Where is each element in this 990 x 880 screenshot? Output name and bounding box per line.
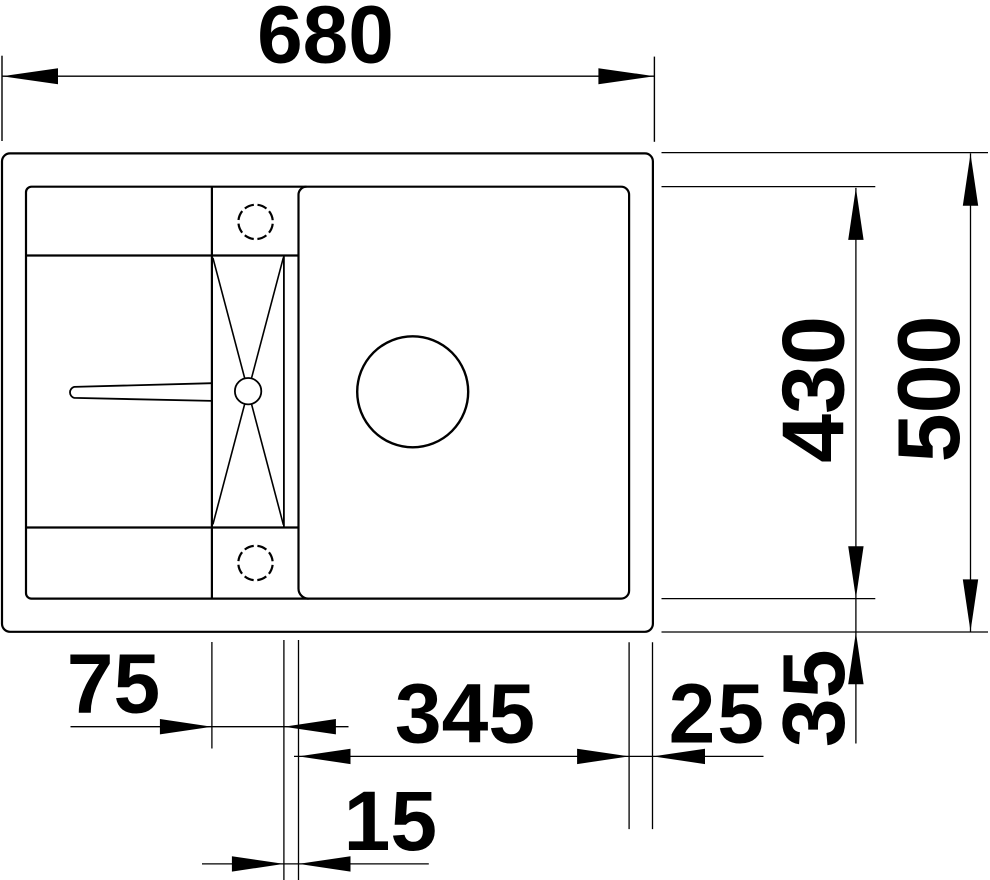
svg-text:25: 25 xyxy=(669,667,766,761)
svg-text:15: 15 xyxy=(344,774,437,868)
svg-text:345: 345 xyxy=(395,667,535,761)
svg-text:430: 430 xyxy=(764,316,863,463)
svg-text:680: 680 xyxy=(257,0,394,81)
svg-text:75: 75 xyxy=(67,637,160,731)
svg-text:500: 500 xyxy=(879,315,978,462)
svg-text:35: 35 xyxy=(764,649,863,747)
